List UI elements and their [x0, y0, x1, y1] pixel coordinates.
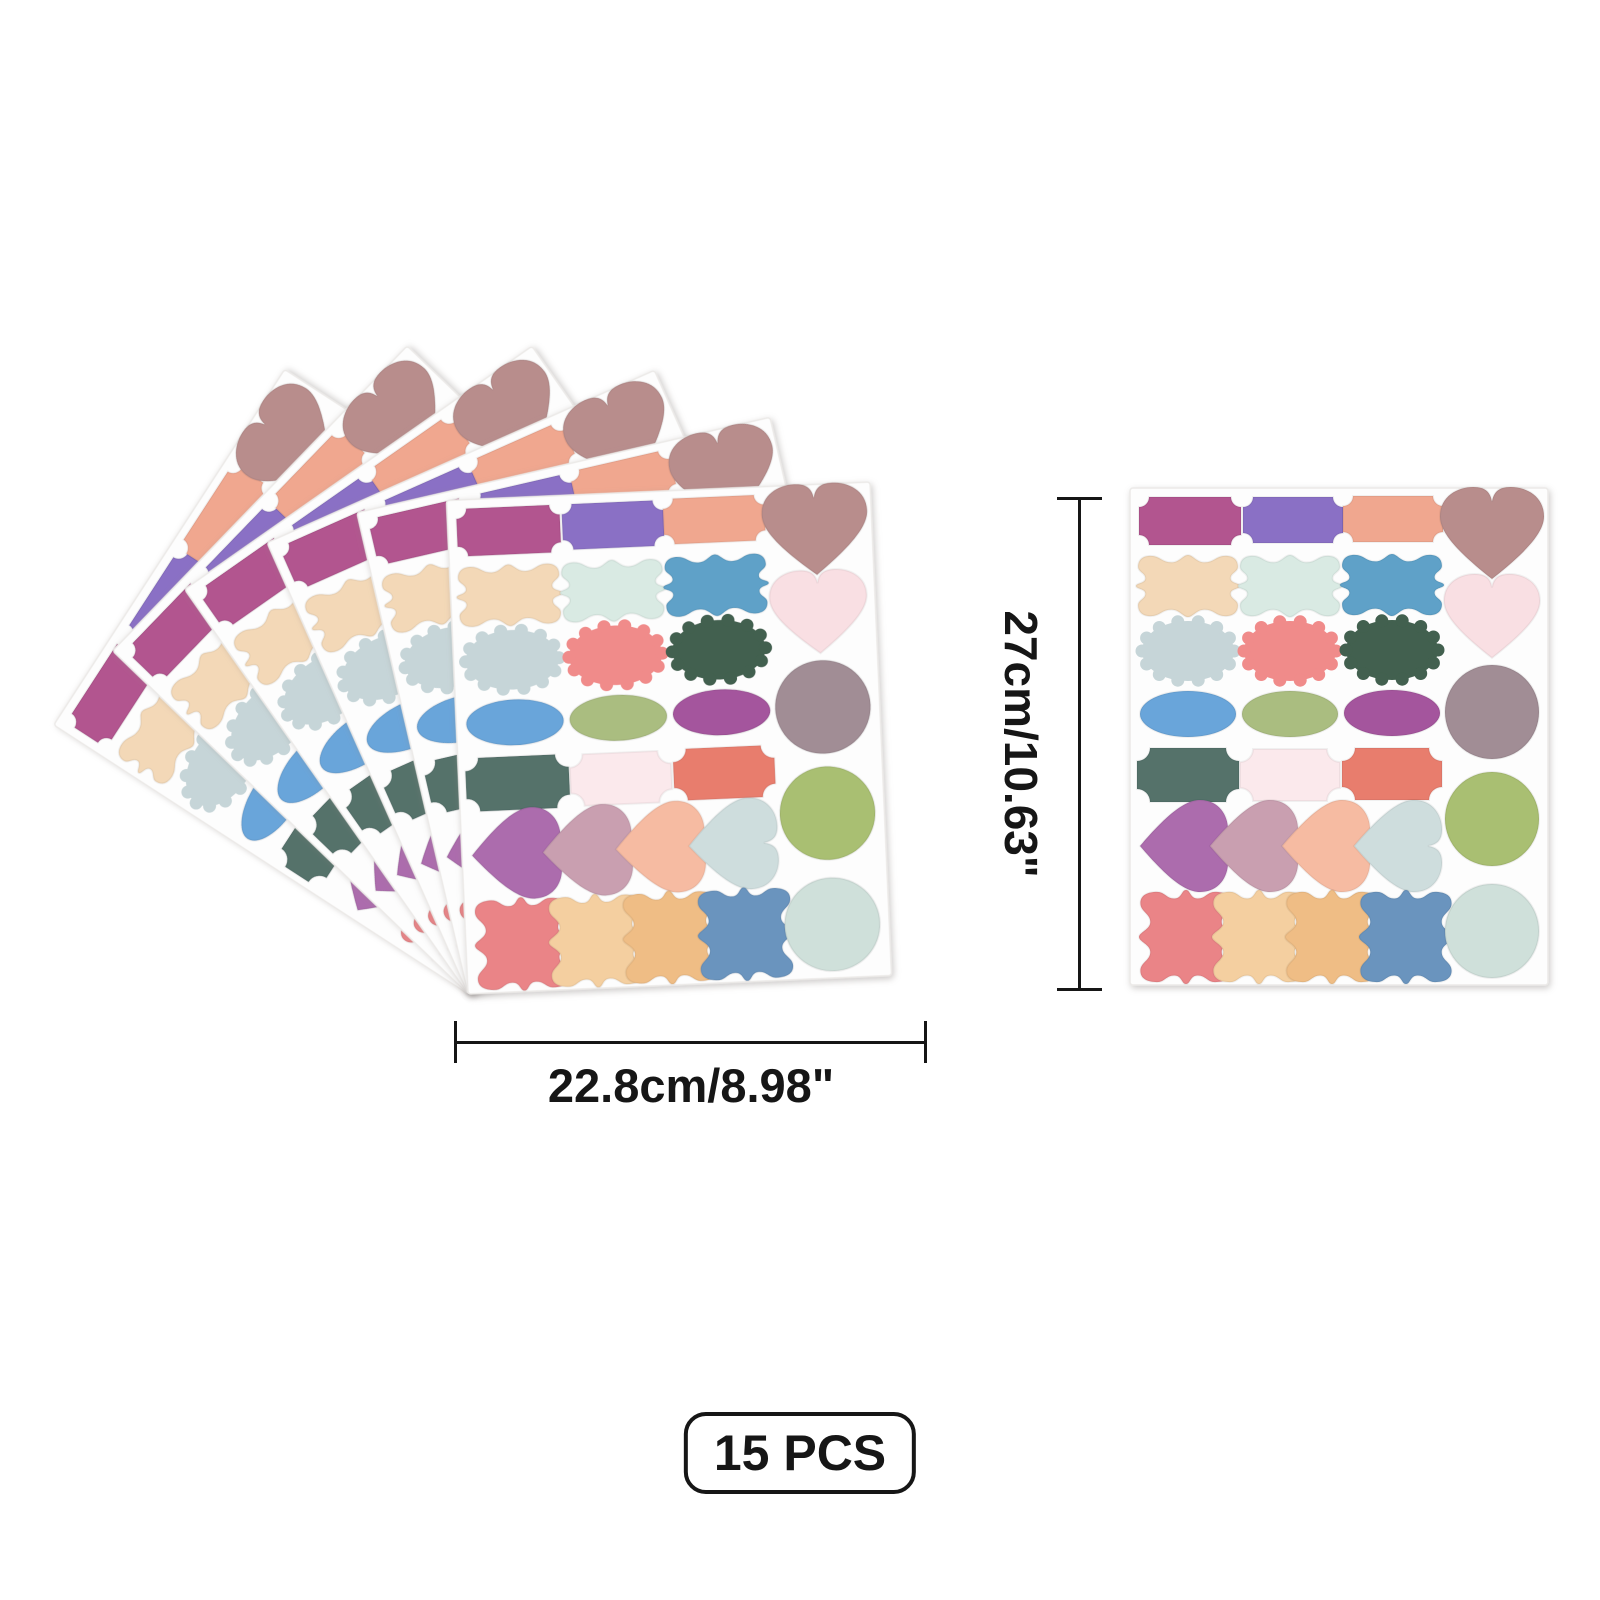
sticker-circle: [1445, 772, 1539, 866]
sticker-ellipse: [1242, 691, 1338, 737]
sticker-sheet: [446, 481, 891, 994]
sticker-ticket: [465, 754, 571, 812]
sticker-ticket: [1343, 496, 1443, 542]
sticker-ticket: [663, 495, 766, 545]
sticker-ticket: [561, 500, 664, 550]
sticker-sheets-photo: [0, 0, 1600, 1600]
height-dimension-line: [1078, 498, 1081, 990]
sticker-ticket: [1137, 748, 1239, 802]
sticker-ornate: [1238, 555, 1342, 617]
width-dimension-tick-right: [924, 1021, 927, 1063]
sticker-ticket: [1139, 497, 1241, 545]
sticker-ticket: [1243, 497, 1343, 543]
sticker-ornate: [696, 885, 795, 983]
sticker-ticket: [456, 504, 561, 556]
sticker-circle: [1445, 884, 1539, 978]
width-dimension-label: 22.8cm/8.98": [455, 1058, 927, 1113]
height-dimension-tick-top: [1057, 497, 1102, 500]
fanned-sticker-sheet: [446, 481, 891, 994]
sticker-ticket: [569, 750, 673, 806]
width-dimension-line: [455, 1041, 927, 1044]
sticker-ornate: [1359, 890, 1453, 984]
sticker-ornate: [1340, 554, 1444, 616]
single-sticker-sheet: [1130, 487, 1548, 985]
sticker-ornate: [455, 562, 563, 628]
height-dimension-label: 27cm/10.63": [994, 610, 1048, 877]
sticker-ticket: [672, 745, 776, 801]
sticker-ornate: [662, 552, 770, 618]
sticker-ellipse: [1344, 690, 1440, 736]
product-image-canvas: 22.8cm/8.98" 27cm/10.63" 15 PCS: [0, 0, 1600, 1600]
sticker-circle: [1445, 665, 1539, 759]
width-dimension-tick-left: [454, 1021, 457, 1063]
sticker-ticket: [1240, 749, 1340, 801]
pcs-count-badge: 15 PCS: [684, 1412, 916, 1494]
sticker-ellipse: [1140, 691, 1236, 737]
sticker-sheet: [1130, 487, 1548, 985]
sticker-ornate: [1136, 555, 1240, 617]
height-dimension-tick-bottom: [1057, 988, 1102, 991]
sticker-ticket: [1342, 748, 1442, 800]
sticker-ornate: [559, 558, 667, 624]
